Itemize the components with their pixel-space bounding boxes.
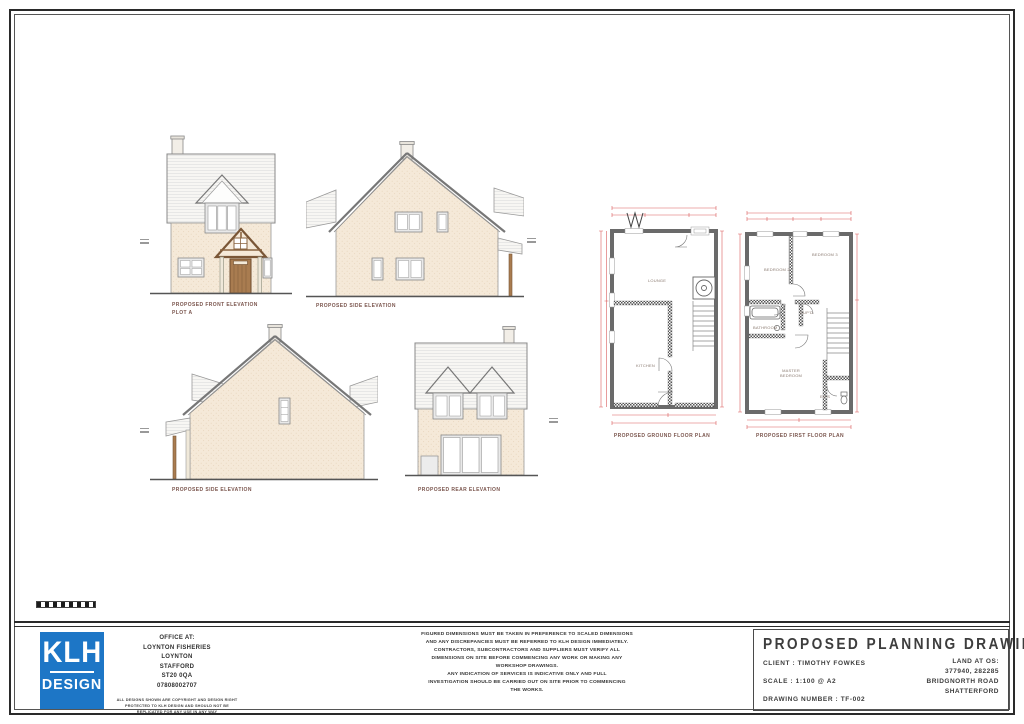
side-elevation-drawing (306, 140, 524, 303)
sheet-title: PROPOSED PLANNING DRAWINGS (763, 636, 1024, 654)
level-mark-icon (527, 238, 536, 244)
office-phone: 07808002707 (110, 682, 244, 692)
room-label-cupboard: CUP'D (800, 310, 813, 315)
scale-row: SCALE : 1:100 @ A2 (763, 678, 836, 685)
first-floor-plan-drawing (737, 208, 863, 436)
porch-side (166, 418, 190, 479)
chimney (503, 327, 515, 344)
project-info-box: PROPOSED PLANNING DRAWINGS CLIENT : TIMO… (753, 629, 1009, 711)
level-mark-icon (140, 428, 149, 434)
chimney (171, 136, 184, 156)
logo-text-top: KLH (43, 638, 102, 668)
first-floor-caption: PROPOSED FIRST FLOOR PLAN (737, 433, 863, 441)
office-line: LOYNTON FISHERIES (110, 644, 244, 654)
side-window (263, 258, 272, 278)
rear-elevation-caption: PROPOSED REAR ELEVATION (418, 487, 500, 495)
logo-text-bottom: DESIGN (42, 676, 103, 693)
toilet (841, 392, 847, 404)
drawing-sheet: PROPOSED FRONT ELEVATION PLOT A (0, 0, 1024, 724)
stair-window (279, 398, 290, 424)
room-label-bedroom3: BEDROOM 3 (812, 252, 838, 257)
drawing-number-row: DRAWING NUMBER : TF-002 (763, 696, 865, 703)
lower-windows (372, 258, 424, 280)
dimensions-disclaimer: FIGURED DIMENSIONS MUST BE TAKEN IN PREF… (398, 631, 656, 695)
scale-bar (36, 601, 96, 608)
room-label-bedroom2: BEDROOM 2 (764, 267, 790, 272)
level-mark-icon (140, 239, 149, 245)
gable-wall (190, 339, 364, 479)
rear-elevation-drawing (405, 323, 538, 483)
room-label-kitchen: KITCHEN (636, 363, 655, 368)
ground-floor-window (178, 258, 204, 277)
office-line: OFFICE AT: (110, 634, 244, 644)
porch-side (498, 238, 522, 296)
copyright-note: ALL DESIGNS SHOWN ARE COPYRIGHT AND DESI… (110, 697, 244, 716)
right-roof-plane (494, 188, 524, 216)
room-label-master-bedroom: MASTER BEDROOM (780, 368, 802, 378)
office-line: STAFFORD (110, 663, 244, 673)
ground-floor-caption: PROPOSED GROUND FLOOR PLAN (597, 433, 727, 441)
site-location-block: LAND AT OS: 377940, 282285 BRIDGNORTH RO… (927, 657, 1000, 697)
front-elevation-caption: PROPOSED FRONT ELEVATION PLOT A (172, 302, 258, 317)
level-mark-icon (549, 418, 558, 424)
side-elevation2-caption: PROPOSED SIDE ELEVATION (172, 487, 252, 495)
office-line: LOYNTON (110, 653, 244, 663)
room-label-lounge: LOUNGE (648, 278, 666, 283)
left-roof-plane (306, 190, 336, 228)
front-elevation-drawing (150, 128, 292, 300)
room-label-ensuite: EN S (820, 394, 830, 399)
klh-design-logo: KLH DESIGN (40, 632, 104, 709)
side-elevation2-drawing (150, 322, 378, 486)
side-elevation-caption: PROPOSED SIDE ELEVATION (316, 303, 396, 311)
tank (693, 277, 715, 299)
bathtub (750, 306, 780, 319)
ground-floor-plan-drawing (597, 203, 727, 431)
bifold-doors (441, 435, 501, 475)
titleblock-rule-thin (14, 626, 1010, 627)
side-door (421, 456, 438, 475)
room-label-bathroom: BATHROOM (753, 325, 777, 330)
main-roof (415, 343, 527, 409)
logo-divider (50, 671, 94, 673)
office-address-block: OFFICE AT: LOYNTON FISHERIES LOYNTON STA… (110, 634, 244, 716)
external-walls (612, 231, 716, 407)
upper-windows (395, 212, 448, 232)
client-row: CLIENT : TIMOTHY FOWKES (763, 660, 866, 667)
office-line: ST20 0QA (110, 672, 244, 682)
titleblock-rule-thick (14, 621, 1010, 623)
right-roof-plane (350, 376, 378, 408)
